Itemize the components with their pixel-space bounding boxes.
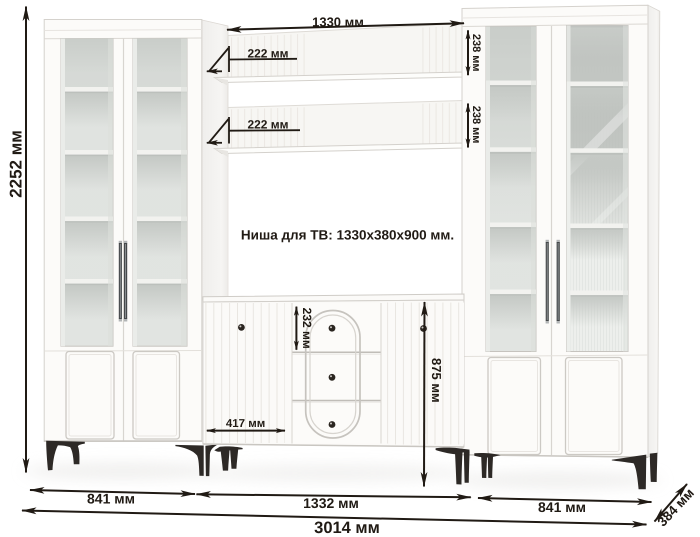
svg-text:1330 мм: 1330 мм [312,14,364,29]
svg-text:875 мм: 875 мм [429,358,444,403]
svg-text:841 мм: 841 мм [538,499,586,515]
svg-text:417 мм: 417 мм [226,418,265,430]
svg-text:238 мм: 238 мм [470,106,482,144]
svg-text:1332 мм: 1332 мм [303,495,359,511]
svg-text:3014 мм: 3014 мм [314,519,380,537]
svg-text:222 мм: 222 мм [247,47,288,61]
svg-text:238 мм: 238 мм [470,34,482,72]
svg-text:232 мм: 232 мм [300,308,314,349]
svg-text:841 мм: 841 мм [87,491,135,507]
svg-text:2252 мм: 2252 мм [7,130,26,198]
svg-text:222 мм: 222 мм [247,118,288,132]
svg-text:Ниша для ТВ: 1330x380x900 мм.: Ниша для ТВ: 1330x380x900 мм. [241,227,454,242]
